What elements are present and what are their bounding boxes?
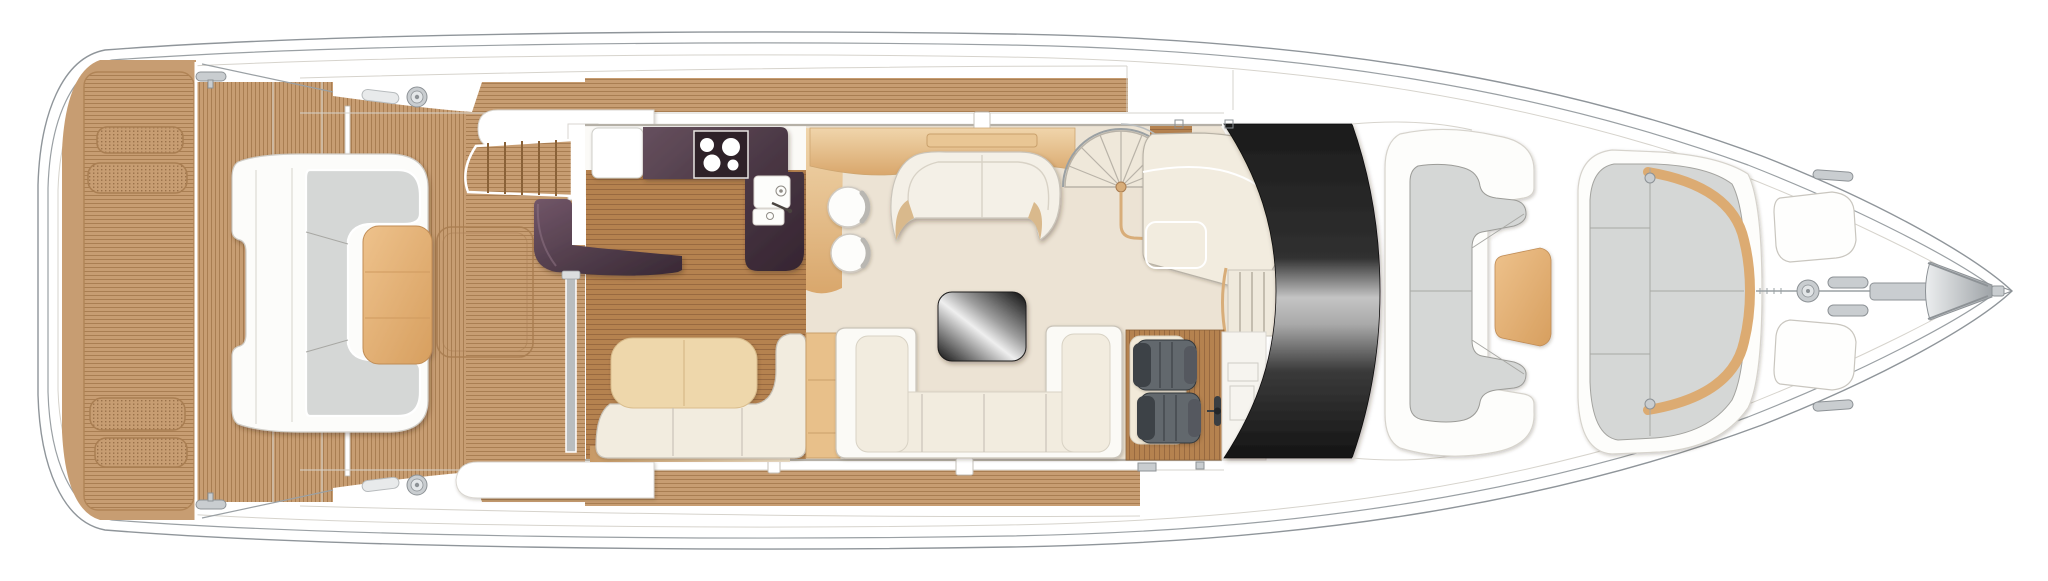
stemhead-fitting bbox=[1992, 286, 2004, 296]
side-deck-starboard-teak bbox=[585, 470, 1140, 506]
platform-hatch bbox=[90, 398, 185, 430]
spiral-center-post bbox=[1116, 182, 1126, 192]
fuel-filler-port bbox=[407, 87, 427, 107]
cooktop bbox=[694, 131, 748, 178]
cockpit-seating bbox=[232, 154, 432, 432]
dinette-end-cabinet bbox=[806, 333, 840, 458]
platform-hatch bbox=[95, 438, 187, 467]
pad-hinge bbox=[1645, 399, 1655, 409]
platform-hatch bbox=[88, 163, 187, 193]
side-step-pad-starboard bbox=[456, 462, 654, 498]
deck-plan-figure bbox=[0, 0, 2048, 581]
u-sofa-right-arm-cushion bbox=[1062, 334, 1110, 452]
helm-seat-port bbox=[1133, 340, 1197, 390]
burner bbox=[722, 138, 740, 156]
galley-cabinet-white bbox=[592, 128, 643, 178]
u-sofa-left-arm-cushion bbox=[856, 336, 908, 452]
sun-pad bbox=[1578, 150, 1762, 454]
burner bbox=[728, 160, 739, 171]
door-tab-bottom-2 bbox=[956, 458, 973, 475]
chain-stopper-starboard bbox=[1828, 305, 1868, 316]
deck-plan-canvas bbox=[0, 0, 2048, 581]
sink-drain-center bbox=[779, 189, 783, 193]
deck-hardware bbox=[1196, 462, 1204, 469]
starboard-steps bbox=[1223, 268, 1277, 338]
helm-seat-starboard bbox=[1137, 393, 1201, 443]
door-mullion-collar bbox=[562, 271, 580, 279]
door-tab-top bbox=[974, 112, 990, 130]
coffee-table-tv bbox=[938, 292, 1026, 361]
platform-hatch bbox=[97, 127, 183, 153]
side-table-fwd bbox=[831, 234, 869, 272]
dinette bbox=[590, 333, 840, 462]
chain-stopper-port bbox=[1828, 277, 1868, 288]
cockpit-table bbox=[363, 226, 432, 364]
faucet-base bbox=[788, 209, 792, 213]
side-table-aft bbox=[828, 187, 868, 227]
deck-hardware bbox=[1138, 463, 1156, 471]
bow-table bbox=[1495, 248, 1551, 346]
pad-hinge bbox=[1645, 173, 1655, 183]
windlass bbox=[1797, 280, 1819, 302]
fuel-filler-starboard bbox=[407, 475, 427, 495]
aft-door-threshold bbox=[572, 197, 586, 245]
side-deck-port-teak bbox=[585, 78, 1128, 112]
foredeck-hatch bbox=[1774, 320, 1856, 390]
foredeck-hatch bbox=[1774, 192, 1856, 262]
burner bbox=[704, 155, 721, 172]
sideboard-vent-panel bbox=[927, 134, 1037, 147]
burner bbox=[700, 138, 714, 152]
foredeck-seating bbox=[1385, 129, 1551, 456]
door-mullion-post bbox=[566, 276, 576, 452]
